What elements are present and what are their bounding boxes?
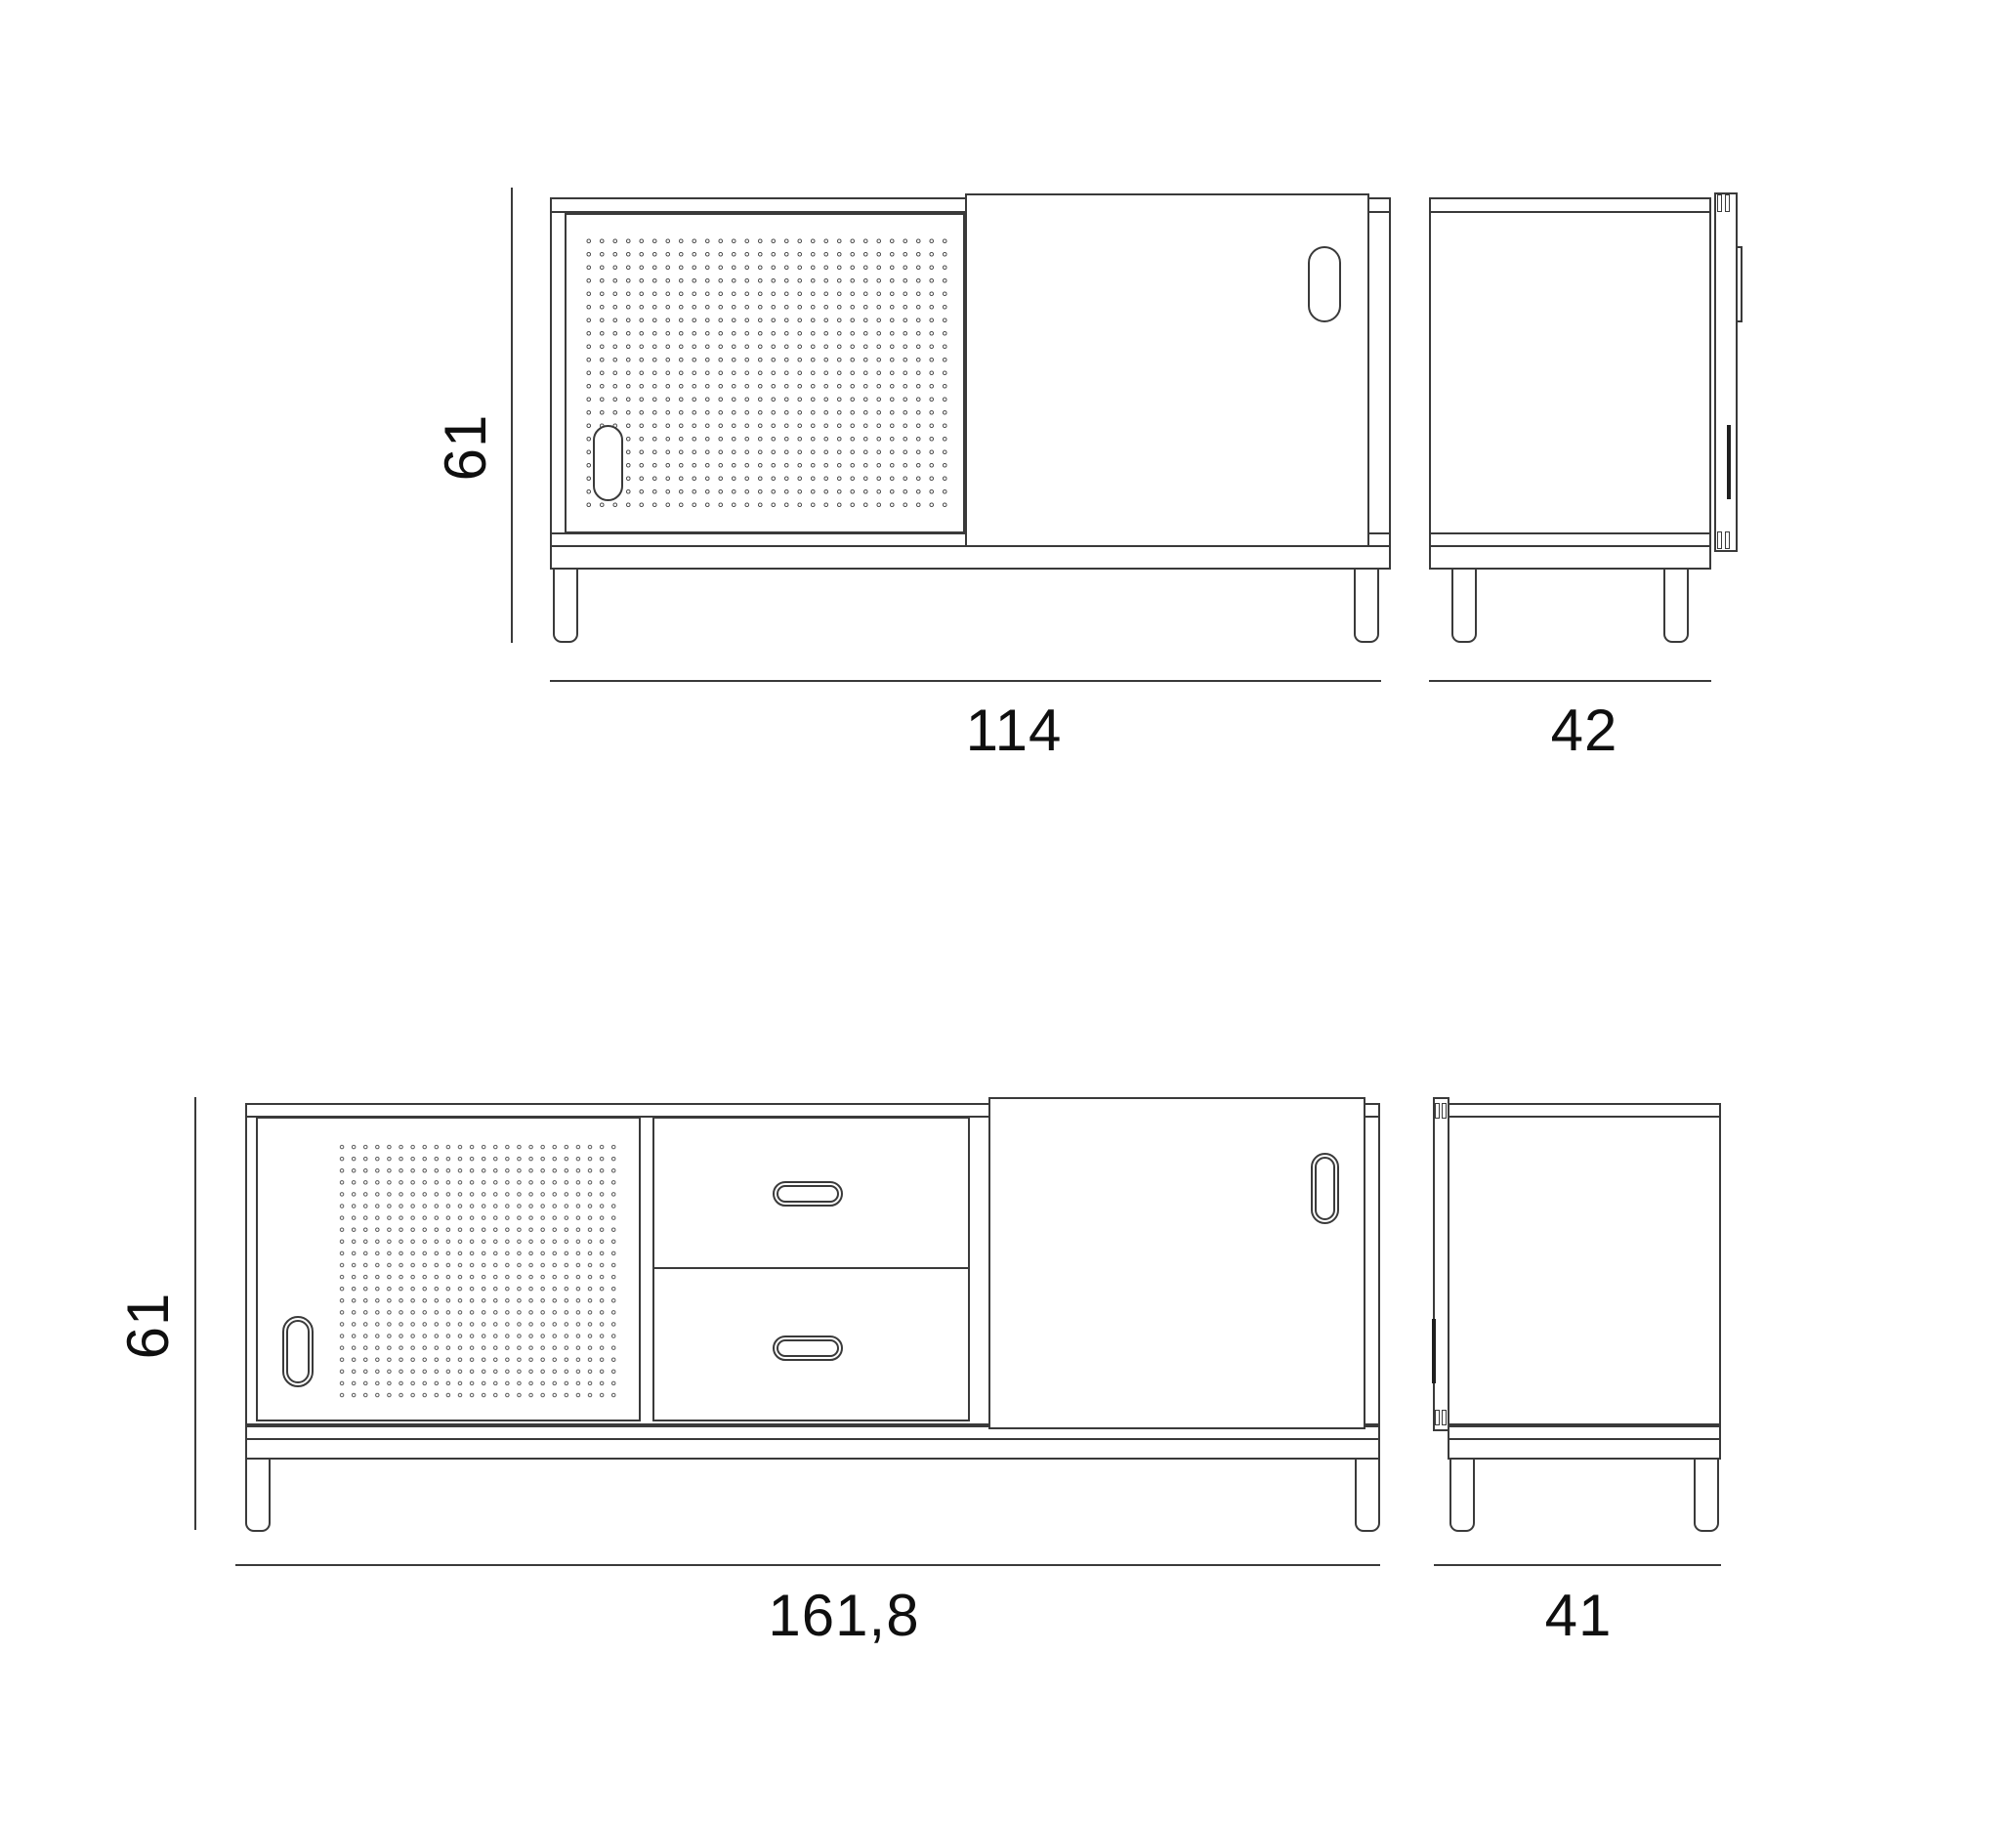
- bottom-perforated-door-handle-cutout: [282, 1316, 314, 1387]
- upper-drawer-handle-cutout: [773, 1181, 843, 1207]
- top-side-rear-handle-slot: [1727, 425, 1731, 499]
- bottom-side-top-rail-line: [1448, 1116, 1721, 1118]
- top-side-door-track-tick-bottom-2: [1725, 531, 1730, 549]
- top-height-dimension-label: 61: [437, 414, 495, 482]
- bottom-front-right-leg: [1355, 1460, 1380, 1532]
- bottom-side-door-track-tick-top-2: [1442, 1103, 1447, 1119]
- bottom-sliding-door: [988, 1097, 1365, 1429]
- top-depth-dimension-line: [1429, 680, 1711, 682]
- top-side-cabinet-body: [1429, 197, 1711, 547]
- lower-drawer-handle-cutout: [773, 1335, 843, 1361]
- top-side-door-panel-edge: [1714, 192, 1738, 552]
- top-side-plinth: [1429, 545, 1711, 570]
- bottom-width-dimension-line: [235, 1564, 1380, 1566]
- top-height-dimension-line: [511, 188, 513, 643]
- top-sliding-door: [965, 193, 1369, 547]
- bottom-side-cabinet-body: [1448, 1103, 1721, 1425]
- top-front-plinth: [550, 545, 1391, 570]
- top-side-left-leg: [1451, 570, 1477, 643]
- top-side-top-rail-line: [1429, 211, 1711, 213]
- bottom-side-door-track-tick-top-1: [1435, 1103, 1440, 1119]
- top-side-bottom-rail-line: [1429, 532, 1711, 534]
- bottom-sliding-door-handle-cutout: [1311, 1153, 1339, 1224]
- top-side-right-leg: [1663, 570, 1689, 643]
- top-width-dimension-label: 114: [966, 701, 1063, 760]
- bottom-height-dimension-label: 61: [119, 1293, 178, 1360]
- drawer-divider-line: [652, 1267, 970, 1269]
- bottom-front-plinth: [245, 1438, 1380, 1460]
- bottom-side-left-leg: [1449, 1460, 1475, 1532]
- bottom-side-plinth: [1448, 1438, 1721, 1460]
- bottom-depth-dimension-label: 41: [1545, 1587, 1613, 1645]
- top-front-left-leg: [553, 570, 578, 643]
- bottom-height-dimension-line: [194, 1097, 196, 1530]
- bottom-perforation-pattern: [336, 1141, 619, 1399]
- bottom-side-door-track-tick-bottom-1: [1435, 1410, 1440, 1425]
- top-width-dimension-line: [550, 680, 1381, 682]
- top-perforated-door-handle-cutout: [593, 425, 623, 501]
- bottom-front-left-leg: [245, 1460, 271, 1532]
- bottom-side-handle-slot: [1432, 1319, 1436, 1383]
- top-side-door-track-tick-top-2: [1725, 194, 1730, 212]
- top-side-door-track-tick-top-1: [1717, 194, 1722, 212]
- bottom-side-right-leg: [1694, 1460, 1719, 1532]
- top-front-right-leg: [1354, 570, 1379, 643]
- top-perforation-pattern: [582, 234, 951, 514]
- top-sliding-door-handle-cutout: [1308, 246, 1341, 322]
- drawer-unit: [652, 1117, 970, 1421]
- bottom-side-door-track-tick-bottom-2: [1442, 1410, 1447, 1425]
- bottom-depth-dimension-line: [1434, 1564, 1721, 1566]
- top-depth-dimension-label: 42: [1551, 701, 1618, 760]
- bottom-width-dimension-label: 161,8: [768, 1587, 919, 1645]
- top-side-door-track-tick-bottom-1: [1717, 531, 1722, 549]
- dimension-drawing-canvas: 61 114: [0, 0, 2016, 1823]
- top-side-handle-edge: [1736, 246, 1743, 322]
